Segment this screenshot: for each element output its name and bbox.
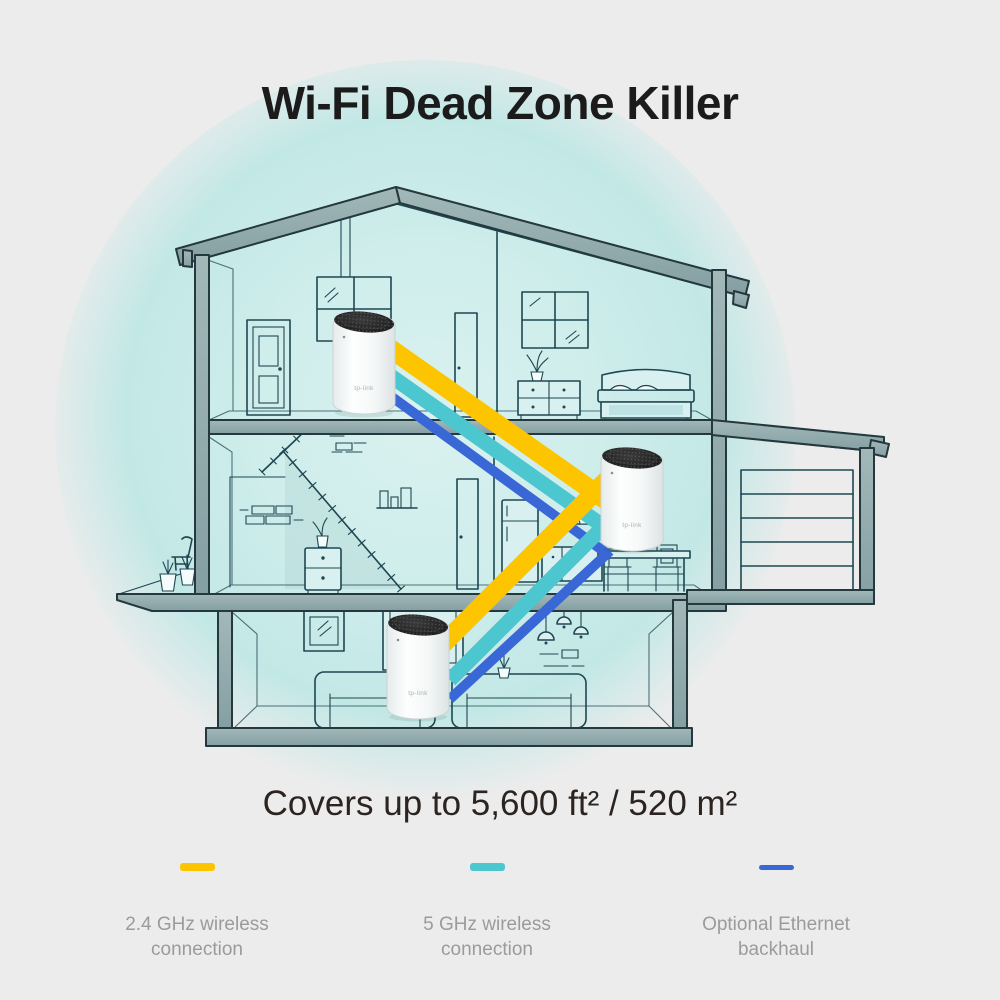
dresser [518, 381, 580, 419]
page-title: Wi-Fi Dead Zone Killer [0, 76, 1000, 130]
legend-swatch-24ghz [180, 863, 215, 871]
roof-right-lip [733, 291, 749, 308]
legend-item-ethernet: Optional Ethernet backhaul [656, 858, 896, 962]
legend-swatch-ethernet [759, 865, 794, 870]
garage-right-wall [860, 448, 874, 604]
legend-label-5ghz: 5 GHz wireless connection [387, 912, 587, 962]
legend-label-ethernet: Optional Ethernet backhaul [676, 912, 876, 962]
deco-logo-text: tp-link [622, 522, 642, 529]
ground-slab [206, 728, 692, 746]
deco-unit-attic: tp-link [333, 309, 395, 417]
house-illustration: tp-link tp-link tp-link [0, 0, 1000, 1000]
deco-unit-living: tp-link [387, 612, 449, 721]
legend-item-5ghz: 5 GHz wireless connection [367, 858, 607, 962]
led-dot [343, 336, 346, 339]
bottom-left-wall [218, 611, 232, 730]
legend-label-24ghz: 2.4 GHz wireless connection [97, 912, 297, 962]
legend-item-24ghz: 2.4 GHz wireless connection [77, 858, 317, 962]
legend-swatch-5ghz [470, 863, 505, 871]
led-dot [611, 472, 614, 475]
bottom-right-wall [673, 600, 687, 730]
led-dot [397, 639, 400, 642]
coverage-text: Covers up to 5,600 ft² / 520 m² [0, 784, 1000, 824]
deco-logo-text: tp-link [354, 385, 374, 392]
deco-unit-kitchen: tp-link [601, 445, 663, 553]
deco-logo-text: tp-link [408, 690, 428, 697]
infographic-canvas: tp-link tp-link tp-link Wi-Fi Dea [0, 0, 1000, 1000]
roof-left-lip [183, 250, 192, 267]
garage-floor-slab [687, 590, 874, 604]
middle-floor-slab [117, 594, 726, 611]
left-wall [195, 255, 209, 597]
